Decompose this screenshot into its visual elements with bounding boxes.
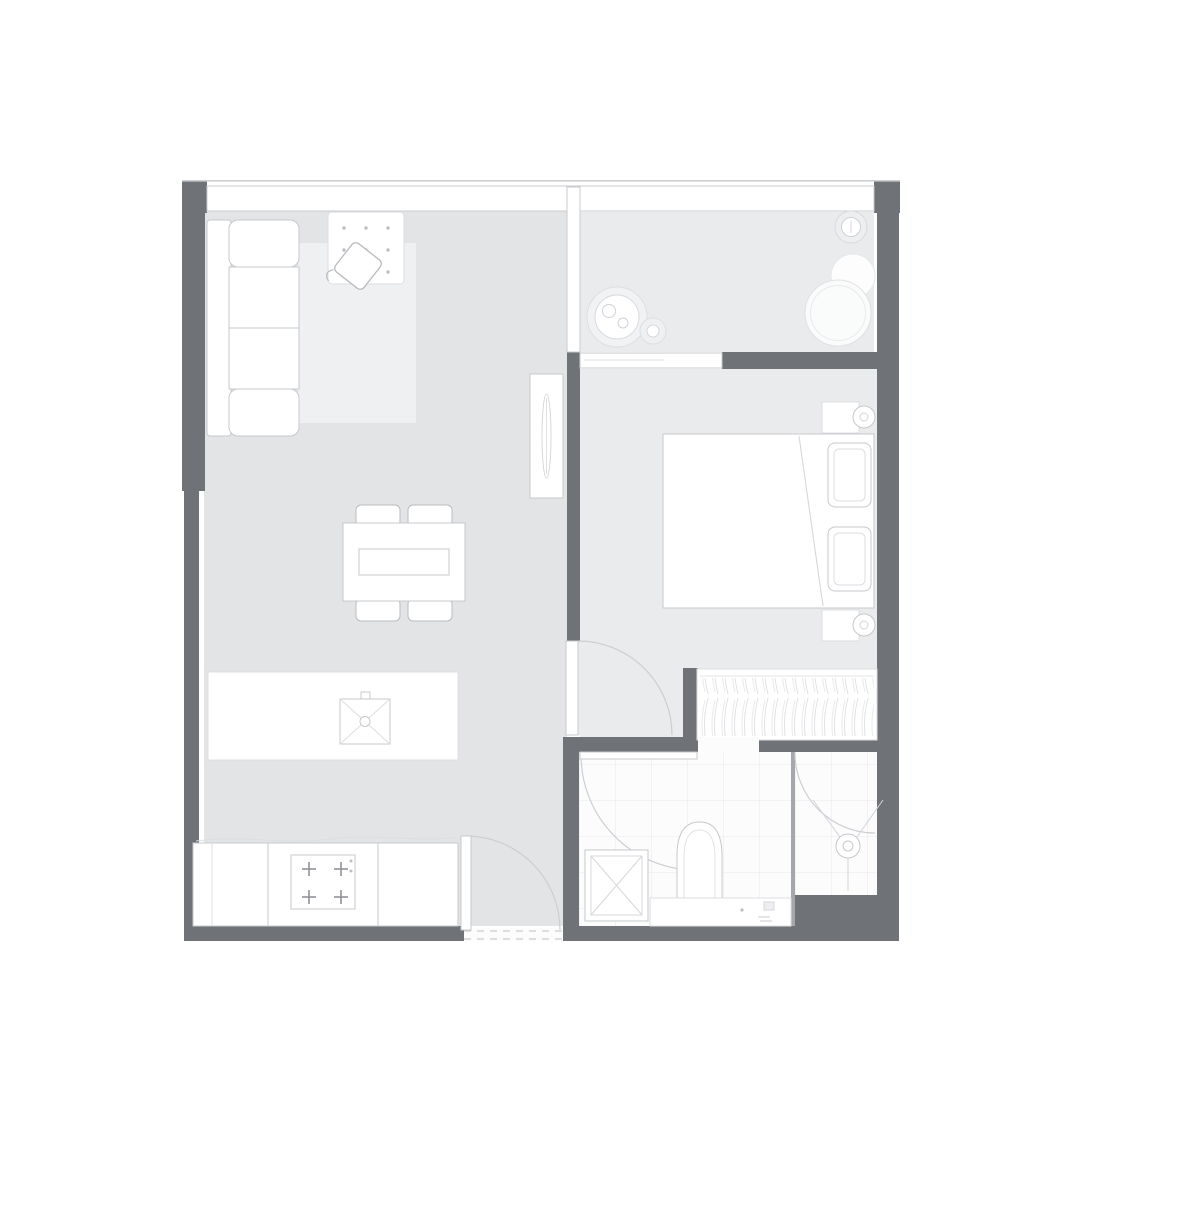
top-facade-line xyxy=(182,180,900,182)
wardrobe-hangers xyxy=(700,678,874,736)
dining-chair xyxy=(356,599,400,621)
stove xyxy=(291,855,355,909)
wardrobe-wall-stub xyxy=(683,668,698,738)
vanity xyxy=(650,898,791,926)
bathroom-top-wall-left xyxy=(563,737,698,752)
exterior-wall-bottom-left xyxy=(184,926,464,941)
exterior-wall-right xyxy=(877,181,899,895)
sofa-armrest-bottom xyxy=(229,389,299,436)
sofa-back xyxy=(207,220,231,436)
wardrobe xyxy=(697,669,877,740)
floor-plan xyxy=(0,0,1200,1213)
stove-top xyxy=(291,855,355,909)
exterior-wall-bottom-right xyxy=(563,926,899,941)
washing-machine xyxy=(585,850,648,921)
island-sink xyxy=(340,692,390,744)
sink-drain xyxy=(360,717,370,727)
sofa-armrest-top xyxy=(229,220,299,267)
floor-plan-page xyxy=(0,0,1200,1213)
glass-partition-living-balcony xyxy=(567,187,580,352)
entry-door-leaf xyxy=(461,836,471,930)
toilet xyxy=(677,822,722,898)
bedroom-balcony-wall xyxy=(722,352,877,369)
partition-living-bathroom xyxy=(563,752,579,932)
top-window-band xyxy=(207,186,874,211)
potted-plant-small xyxy=(640,318,666,344)
table-lamp xyxy=(853,406,875,428)
dining-chair xyxy=(408,599,452,621)
bedroom-door-leaf xyxy=(566,641,578,735)
sofa-cushion-1 xyxy=(229,267,299,328)
partition-living-bedroom xyxy=(567,352,580,641)
kitchen-island xyxy=(208,672,458,760)
sofa xyxy=(207,220,299,436)
sink-faucet xyxy=(361,692,370,699)
flower-pot xyxy=(835,211,867,243)
shower-partition-wall xyxy=(791,752,795,926)
corner-wall-top-left xyxy=(182,181,207,213)
round-chair xyxy=(805,280,871,346)
exterior-wall-left-upper xyxy=(182,181,205,491)
sofa-cushion-2 xyxy=(229,328,299,389)
table-lamp xyxy=(853,614,875,636)
shower-head xyxy=(836,834,860,858)
bed xyxy=(663,434,874,608)
bathroom-door-leaf xyxy=(580,752,697,759)
bathroom-door-opening xyxy=(698,737,759,752)
vanity-sink xyxy=(764,902,774,910)
table-runner xyxy=(359,549,449,575)
floor-mirror xyxy=(530,374,563,498)
potted-plant-large xyxy=(587,287,647,347)
